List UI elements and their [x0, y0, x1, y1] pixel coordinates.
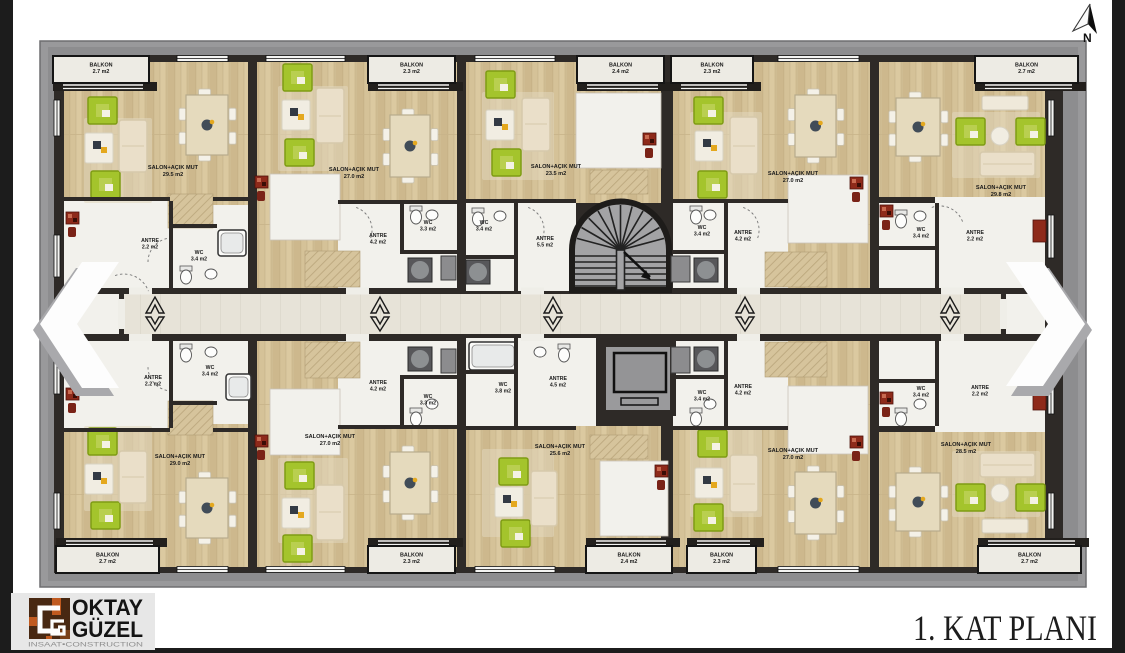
svg-text:ANTRE2.2 m2: ANTRE2.2 m2 [966, 230, 984, 242]
svg-text:INSAAT•CONSTRUCTION: INSAAT•CONSTRUCTION [28, 643, 143, 649]
svg-text:ANTRE4.5 m2: ANTRE4.5 m2 [549, 376, 567, 388]
svg-text:ANTRE4.2 m2: ANTRE4.2 m2 [369, 380, 387, 392]
svg-text:BALKON2.3 m2: BALKON2.3 m2 [700, 63, 723, 76]
svg-text:1. KAT PLANI: 1. KAT PLANI [913, 608, 1097, 648]
svg-text:ANTRE5.5 m2: ANTRE5.5 m2 [536, 236, 554, 248]
svg-text:ANTRE4.2 m2: ANTRE4.2 m2 [369, 233, 387, 245]
svg-text:BALKON2.3 m2: BALKON2.3 m2 [710, 553, 733, 566]
svg-text:BALKON2.7 m2: BALKON2.7 m2 [1015, 63, 1038, 76]
svg-text:BALKON2.7 m2: BALKON2.7 m2 [1018, 553, 1041, 566]
svg-text:BALKON2.7 m2: BALKON2.7 m2 [96, 553, 119, 566]
svg-text:BALKON2.7 m2: BALKON2.7 m2 [89, 63, 112, 76]
svg-text:ANTRE2.2 m2: ANTRE2.2 m2 [141, 238, 159, 250]
svg-text:ANTRE4.2 m2: ANTRE4.2 m2 [734, 230, 752, 242]
svg-text:ANTRE2.2 m2: ANTRE2.2 m2 [971, 385, 989, 397]
svg-text:ANTRE4.2 m2: ANTRE4.2 m2 [734, 384, 752, 396]
svg-text:BALKON2.4 m2: BALKON2.4 m2 [609, 63, 632, 76]
svg-text:BALKON2.3 m2: BALKON2.3 m2 [400, 553, 423, 566]
svg-text:BALKON2.4 m2: BALKON2.4 m2 [617, 553, 640, 566]
svg-text:GÜZEL: GÜZEL [72, 617, 143, 642]
svg-text:N: N [1083, 31, 1092, 45]
svg-text:ANTRE2.2 m2: ANTRE2.2 m2 [144, 375, 162, 387]
svg-text:BALKON2.3 m2: BALKON2.3 m2 [400, 63, 423, 76]
